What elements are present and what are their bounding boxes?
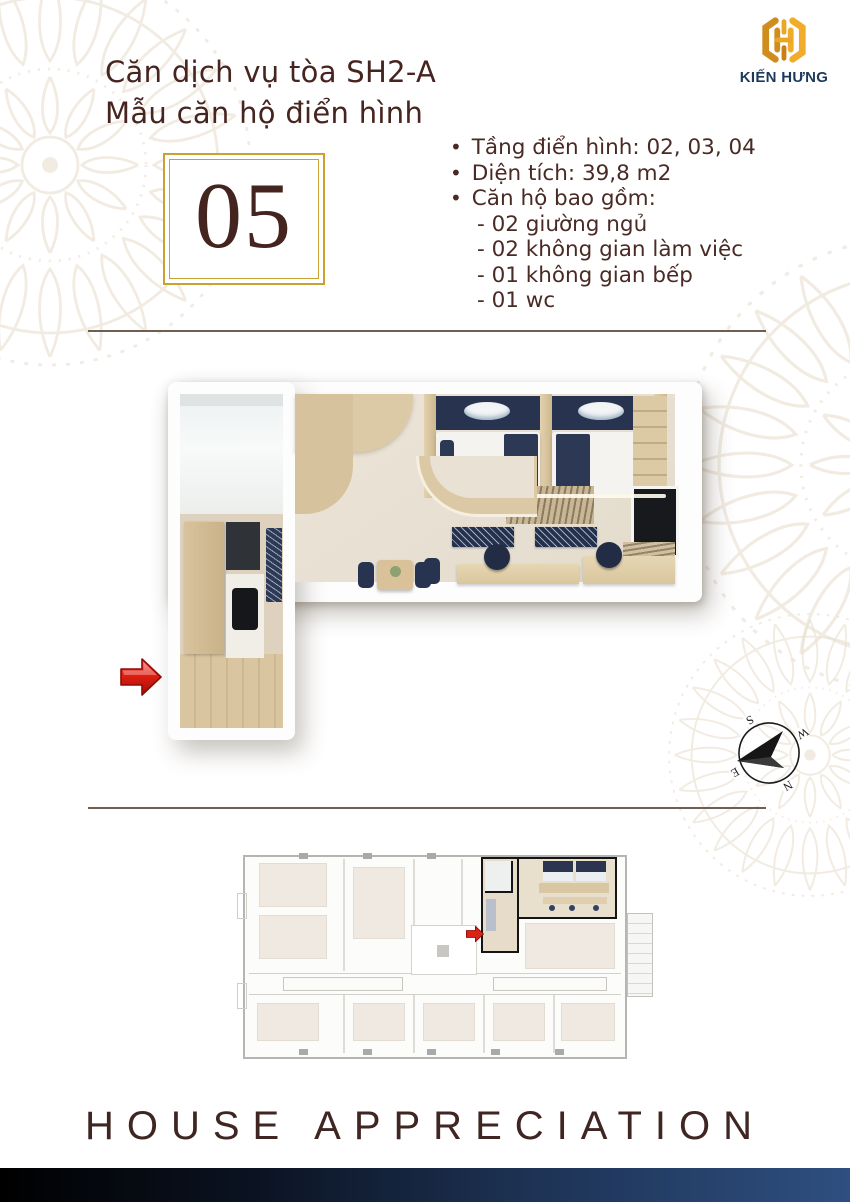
pillar xyxy=(363,1049,372,1055)
faded-room xyxy=(423,1003,475,1041)
faded-room xyxy=(493,1003,545,1041)
faded-room xyxy=(353,1003,405,1041)
table-plant xyxy=(390,566,401,577)
ceiling-light xyxy=(464,402,510,420)
entrance-arrow-icon xyxy=(118,656,164,698)
unit-05-chair xyxy=(593,905,599,911)
pillar xyxy=(491,1049,500,1055)
unit-number-badge: 05 xyxy=(163,153,325,285)
spec-item-label: Căn hộ bao gồm: xyxy=(472,186,656,212)
room-partition xyxy=(413,995,415,1053)
unit-05-bed xyxy=(543,861,573,881)
divider-line xyxy=(88,330,766,332)
closet-shelves xyxy=(633,396,667,492)
faded-room xyxy=(257,1003,319,1041)
pillar xyxy=(427,1049,436,1055)
kitchen-cabinet xyxy=(184,522,224,654)
faded-room xyxy=(259,863,327,907)
title-line-1: Căn dịch vụ tòa SH2-A xyxy=(105,52,436,93)
unit-05-wood-band xyxy=(539,883,609,893)
unit-05-bed xyxy=(576,861,606,881)
core-detail xyxy=(437,945,449,957)
kitchen-appliance xyxy=(226,522,260,570)
floorplan-3d xyxy=(168,382,702,740)
ceiling-light xyxy=(578,402,624,420)
page-title: Căn dịch vụ tòa SH2-A Mẫu căn hộ điển hì… xyxy=(105,52,436,134)
spec-item: • Tầng điển hình: 02, 03, 04 xyxy=(450,135,756,161)
unit-number: 05 xyxy=(195,169,293,263)
brand-logo-icon xyxy=(755,14,813,66)
spec-item-label: Diện tích: 39,8 m2 xyxy=(472,161,671,187)
footer-gradient-bar xyxy=(0,1168,850,1202)
bathroom xyxy=(180,394,283,514)
stair-annex xyxy=(627,913,653,997)
divider-line xyxy=(88,807,766,809)
spec-item: • Diện tích: 39,8 m2 xyxy=(450,161,756,187)
pillar xyxy=(427,853,436,859)
room-partition xyxy=(343,859,345,971)
building-annex xyxy=(237,893,247,919)
faded-room xyxy=(561,1003,615,1041)
dining-chair xyxy=(424,558,440,584)
hallway-label-box xyxy=(493,977,607,991)
title-line-2: Mẫu căn hộ điển hình xyxy=(105,93,436,134)
unit-locator-arrow-icon xyxy=(464,925,486,943)
spec-item: • Căn hộ bao gồm: xyxy=(450,186,756,212)
wall-artwork xyxy=(535,527,597,547)
hallway-label-box xyxy=(283,977,403,991)
spec-subitem: - 02 không gian làm việc xyxy=(477,237,756,263)
specs-list: • Tầng điển hình: 02, 03, 04 • Diện tích… xyxy=(450,135,756,314)
unit-05-chair xyxy=(549,905,555,911)
wall-artwork xyxy=(452,527,514,547)
unit-05-chair xyxy=(569,905,575,911)
faded-room xyxy=(525,923,615,969)
room-partition xyxy=(483,995,485,1053)
bathroom-ceiling-beam xyxy=(180,394,283,406)
wood-partition xyxy=(540,394,552,498)
cooktop xyxy=(232,588,258,630)
faded-room xyxy=(353,867,405,939)
floorplan-overview xyxy=(243,853,655,1058)
brand-name: KIẾN HƯNG xyxy=(728,69,840,86)
entrance-floor xyxy=(180,654,283,728)
brochure-page: Căn dịch vụ tòa SH2-A Mẫu căn hộ điển hì… xyxy=(0,0,850,1202)
pillar xyxy=(363,853,372,859)
dining-chair xyxy=(358,562,374,588)
pillar xyxy=(555,1049,564,1055)
spec-item-label: Tầng điển hình: 02, 03, 04 xyxy=(472,135,756,161)
pillar xyxy=(299,1049,308,1055)
kitchen-art-panel xyxy=(266,528,282,602)
faded-room xyxy=(259,915,327,959)
brand-logo: KIẾN HƯNG xyxy=(728,14,840,86)
unit-05-closet xyxy=(486,899,496,931)
unit-05-bathroom xyxy=(485,861,513,893)
room-partition xyxy=(553,995,555,1053)
office-chair xyxy=(596,542,622,568)
work-desk xyxy=(457,564,579,584)
bullet-dot: • xyxy=(450,135,462,161)
footer-tagline: HOUSE APPRECIATION xyxy=(0,1104,850,1149)
bullet-dot: • xyxy=(450,161,462,187)
unit-05-desk xyxy=(543,897,607,904)
blanket xyxy=(556,434,590,492)
building-annex xyxy=(237,983,247,1009)
pillar xyxy=(299,853,308,859)
room-partition xyxy=(343,995,345,1053)
compass-icon: N E S W xyxy=(726,710,812,796)
spec-subitem: - 01 không gian bếp xyxy=(477,263,756,289)
office-chair xyxy=(484,544,510,570)
spec-subitem: - 01 wc xyxy=(477,288,756,314)
spec-subitem: - 02 giường ngủ xyxy=(477,212,756,238)
bullet-dot: • xyxy=(450,186,462,212)
